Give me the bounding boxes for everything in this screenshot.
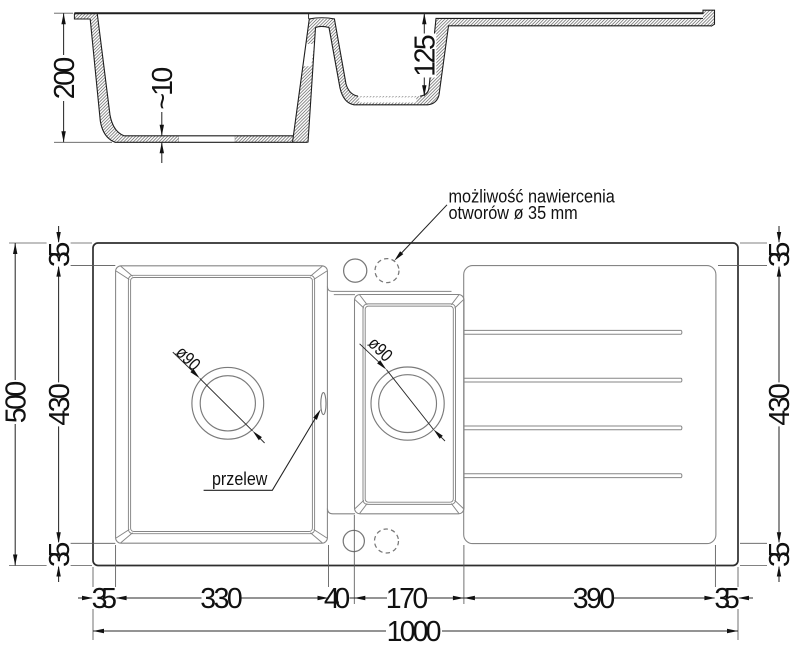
svg-text:otworów ø 35 mm: otworów ø 35 mm — [449, 202, 578, 223]
svg-text:500: 500 — [0, 381, 32, 423]
svg-text:~10: ~10 — [147, 67, 179, 110]
svg-text:430: 430 — [44, 383, 76, 425]
svg-text:ø90: ø90 — [364, 333, 397, 366]
svg-text:35: 35 — [714, 583, 739, 615]
svg-text:przelew: przelew — [212, 468, 268, 489]
svg-text:35: 35 — [92, 583, 117, 615]
svg-text:390: 390 — [573, 583, 615, 615]
svg-text:170: 170 — [386, 583, 428, 615]
svg-text:430: 430 — [764, 383, 796, 425]
svg-text:35: 35 — [44, 242, 76, 267]
svg-text:35: 35 — [764, 542, 796, 567]
svg-text:40: 40 — [324, 583, 350, 615]
svg-text:35: 35 — [44, 542, 76, 567]
svg-text:200: 200 — [49, 57, 81, 99]
svg-text:1000: 1000 — [387, 616, 442, 647]
svg-text:330: 330 — [200, 583, 242, 615]
svg-text:ø90: ø90 — [172, 342, 205, 375]
svg-text:125: 125 — [410, 34, 442, 76]
svg-text:35: 35 — [764, 242, 796, 267]
